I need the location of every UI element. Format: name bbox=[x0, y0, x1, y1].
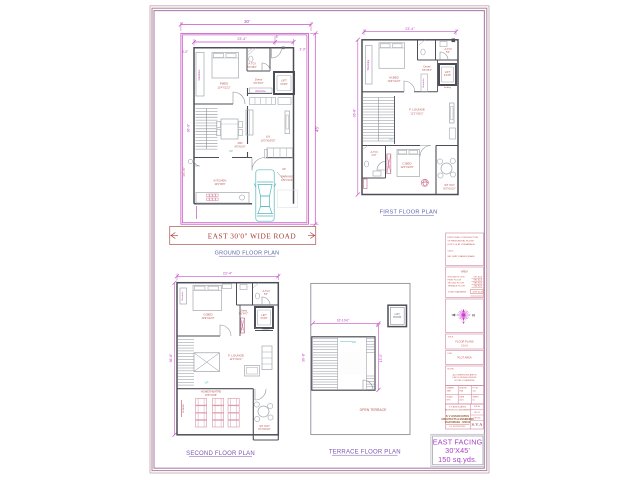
svg-text:S.V.A: S.V.A bbox=[472, 422, 484, 427]
svg-text:NOTE:: NOTE: bbox=[448, 368, 455, 370]
svg-text:Wardrobe: Wardrobe bbox=[367, 59, 370, 70]
svg-text:DESIGN: DESIGN bbox=[459, 387, 467, 389]
svg-text:12'0"X10'9": 12'0"X10'9" bbox=[400, 165, 413, 169]
svg-text:OPEN TERRACE: OPEN TERRACE bbox=[360, 408, 387, 412]
svg-text:SECOND FLOOR: SECOND FLOOR bbox=[448, 283, 465, 285]
svg-text:DRAWN: DRAWN bbox=[447, 386, 455, 389]
svg-text:F. LOUNGE: F. LOUNGE bbox=[228, 353, 244, 357]
svg-text:4'X4'6": 4'X4'6" bbox=[444, 74, 451, 77]
svg-text:5'6"X5'3": 5'6"X5'3" bbox=[422, 69, 432, 72]
svg-text:DRG: DRG bbox=[448, 353, 453, 355]
svg-text:Wardrobe: Wardrobe bbox=[255, 90, 266, 93]
svg-text:ARCHITECTS & ENGINEERS: ARCHITECTS & ENGINEERS bbox=[445, 408, 471, 411]
svg-text:FIRST FLOOR: FIRST FLOOR bbox=[448, 280, 462, 282]
svg-text:FEET & INCHES UNLESS: FEET & INCHES UNLESS bbox=[453, 377, 477, 379]
svg-text:36'-8": 36'-8" bbox=[302, 352, 306, 361]
svg-text:5'0": 5'0" bbox=[264, 293, 268, 296]
svg-text:PLOT AREA: PLOT AREA bbox=[457, 356, 472, 360]
svg-text:Wardrobe: Wardrobe bbox=[242, 320, 244, 330]
svg-text:VIJAYAWADA - 520010: VIJAYAWADA - 520010 bbox=[445, 421, 471, 424]
svg-text:C.BED: C.BED bbox=[402, 161, 412, 165]
svg-text:UP: UP bbox=[389, 137, 393, 141]
svg-text:Ph: 9XXXXXXXXX: Ph: 9XXXXXXXXX bbox=[450, 426, 467, 428]
svg-text:SCREEN: SCREEN bbox=[183, 404, 185, 414]
svg-text:23'-4": 23'-4" bbox=[223, 272, 233, 276]
svg-text:150 sq.yds.: 150 sq.yds. bbox=[438, 455, 477, 464]
svg-text:HOMETHEATRE: HOMETHEATRE bbox=[201, 389, 222, 393]
svg-text:4'X7': 4'X7' bbox=[371, 154, 377, 157]
svg-text:F. LOUNGE: F. LOUNGE bbox=[409, 108, 425, 112]
svg-text:30': 30' bbox=[244, 19, 250, 24]
svg-text:SMR: SMR bbox=[447, 390, 452, 392]
svg-text:LIFT: LIFT bbox=[281, 79, 287, 83]
svg-text:SHEET: SHEET bbox=[473, 397, 480, 399]
svg-text:45': 45' bbox=[315, 126, 320, 132]
svg-text:L/V: L/V bbox=[266, 135, 271, 139]
svg-text:UP: UP bbox=[205, 380, 209, 384]
svg-text:5'0"X8'0": 5'0"X8'0" bbox=[247, 66, 257, 69]
svg-text:2021: 2021 bbox=[459, 400, 463, 402]
svg-text:Dress: Dress bbox=[255, 78, 263, 82]
svg-text:8'1"X10'10": 8'1"X10'10" bbox=[258, 428, 270, 431]
svg-text:16'8"X10'8": 16'8"X10'8" bbox=[205, 394, 217, 397]
svg-text:SECOND FLOOR PLAN: SECOND FLOOR PLAN bbox=[186, 451, 255, 457]
svg-text:FIRST FLOOR PLAN: FIRST FLOOR PLAN bbox=[380, 210, 438, 216]
svg-text:PARKING: PARKING bbox=[281, 174, 293, 178]
svg-text:8'0"X10'10": 8'0"X10'10" bbox=[443, 187, 455, 190]
svg-text:36'-9": 36'-9" bbox=[186, 123, 190, 132]
svg-text:Wardrobe: Wardrobe bbox=[388, 159, 390, 169]
svg-text:UP: UP bbox=[282, 167, 286, 171]
svg-text:N: N bbox=[472, 314, 475, 318]
svg-text:36'-8": 36'-8" bbox=[169, 353, 173, 362]
svg-text:12'1"X11'1": 12'1"X11'1" bbox=[229, 357, 242, 361]
svg-text:01: 01 bbox=[473, 400, 475, 402]
svg-text:15'-0": 15'-0" bbox=[379, 354, 383, 362]
svg-text:2959 Sq.ft: 2959 Sq.ft bbox=[473, 291, 483, 294]
svg-text:5'6"X5'3": 5'6"X5'3" bbox=[254, 82, 264, 85]
svg-text:AREA: AREA bbox=[461, 270, 468, 274]
svg-text:PT. No: PT. No bbox=[473, 387, 479, 389]
svg-text:11'4"X12'2": 11'4"X12'2" bbox=[217, 86, 230, 90]
svg-text:Wardrobe: Wardrobe bbox=[422, 77, 425, 87]
svg-text:PROPOSED CONSTRUCTION: PROPOSED CONSTRUCTION bbox=[448, 237, 479, 239]
svg-text:FLOOR PLANS: FLOOR PLANS bbox=[455, 340, 473, 344]
svg-text:TERRACE FLOOR: TERRACE FLOOR bbox=[448, 285, 466, 288]
svg-text:OF RESIDENTIAL HOUSE: OF RESIDENTIAL HOUSE bbox=[448, 239, 475, 242]
svg-text:JOB No: JOB No bbox=[474, 406, 480, 408]
svg-text:GROUND FLOOR PLAN: GROUND FLOOR PLAN bbox=[215, 250, 280, 256]
svg-text:981 Sq.ft: 981 Sq.ft bbox=[474, 282, 483, 285]
svg-text:DN: DN bbox=[352, 340, 356, 344]
svg-text:10'0"X8'0": 10'0"X8'0" bbox=[214, 183, 225, 186]
svg-text:10'9"X12'0": 10'9"X12'0" bbox=[387, 79, 400, 83]
svg-text:MR. SMR VIJAYA SQUARE: MR. SMR VIJAYA SQUARE bbox=[448, 255, 476, 258]
svg-text:Wardrobe: Wardrobe bbox=[181, 290, 184, 300]
svg-text:981 Sq.ft: 981 Sq.ft bbox=[474, 279, 483, 282]
svg-text:( S+3 ): ( S+3 ) bbox=[461, 345, 468, 347]
svg-text:36'-8": 36'-8" bbox=[352, 108, 356, 117]
svg-text:EAST 30'0" WIDE ROAD: EAST 30'0" WIDE ROAD bbox=[208, 232, 296, 241]
svg-text:10'9"X12'0": 10'9"X12'0" bbox=[201, 316, 214, 320]
svg-text:4'X4'6": 4'X4'6" bbox=[260, 317, 267, 320]
svg-text:16'-10½": 16'-10½" bbox=[337, 319, 350, 323]
svg-text:246 Sq.ft: 246 Sq.ft bbox=[474, 285, 483, 288]
svg-text:14'0"X10'0": 14'0"X10'0" bbox=[281, 179, 293, 182]
svg-text:TERRACE FLOOR PLAN: TERRACE FLOOR PLAN bbox=[329, 449, 401, 455]
svg-text:TOTAL SLAB AREA: TOTAL SLAB AREA bbox=[448, 291, 467, 294]
svg-text:G.BED: G.BED bbox=[203, 312, 213, 316]
svg-text:UTILITY: UTILITY bbox=[183, 167, 186, 177]
svg-text:12'1"X16'1": 12'1"X16'1" bbox=[410, 111, 423, 115]
svg-text:5'0": 5'0" bbox=[446, 51, 450, 54]
svg-text:5'-0": 5'-0" bbox=[182, 50, 188, 54]
svg-text:M.BED: M.BED bbox=[389, 75, 399, 79]
svg-text:landing: landing bbox=[444, 87, 452, 89]
svg-text:GROUND FLOOR: GROUND FLOOR bbox=[448, 276, 465, 278]
svg-text:DIN: DIN bbox=[238, 141, 243, 145]
svg-text:8'6"X10'6": 8'6"X10'6" bbox=[235, 146, 246, 149]
svg-text:ROOM: ROOM bbox=[393, 316, 401, 319]
svg-text:NOTED OTHERWISE: NOTED OTHERWISE bbox=[455, 380, 475, 382]
svg-text:10'3"X16'05": 10'3"X16'05" bbox=[261, 138, 276, 142]
svg-text:3'-3": 3'-3" bbox=[299, 48, 305, 52]
svg-text:KITCHEN: KITCHEN bbox=[214, 179, 227, 183]
svg-text:(STILT+3) AT VIJAYAWADA: (STILT+3) AT VIJAYAWADA bbox=[448, 243, 476, 246]
svg-text:ALL DIMENSIONS ARE IN: ALL DIMENSIONS ARE IN bbox=[453, 373, 477, 376]
svg-text:Client:: Client: bbox=[448, 250, 455, 253]
svg-text:Wardrobe: Wardrobe bbox=[198, 69, 201, 80]
svg-text:DATE: DATE bbox=[459, 396, 465, 399]
svg-text:TITLE: TITLE bbox=[448, 336, 454, 338]
svg-text:UP: UP bbox=[229, 149, 233, 153]
svg-text:5': 5' bbox=[276, 35, 279, 39]
svg-text:23'-4": 23'-4" bbox=[237, 37, 247, 41]
svg-text:142: 142 bbox=[473, 390, 476, 392]
svg-text:DRG No: DRG No bbox=[474, 418, 481, 420]
svg-text:4'X4'6": 4'X4'6" bbox=[280, 83, 288, 86]
svg-text:997 Sq.ft: 997 Sq.ft bbox=[474, 275, 483, 278]
svg-text:142-21: 142-21 bbox=[474, 412, 480, 414]
svg-text:SCALE: SCALE bbox=[447, 396, 454, 399]
svg-text:23'-4": 23'-4" bbox=[405, 27, 415, 31]
svg-text:S V ASSOCIATES: S V ASSOCIATES bbox=[449, 406, 467, 409]
svg-text:P.BED: P.BED bbox=[220, 82, 229, 86]
